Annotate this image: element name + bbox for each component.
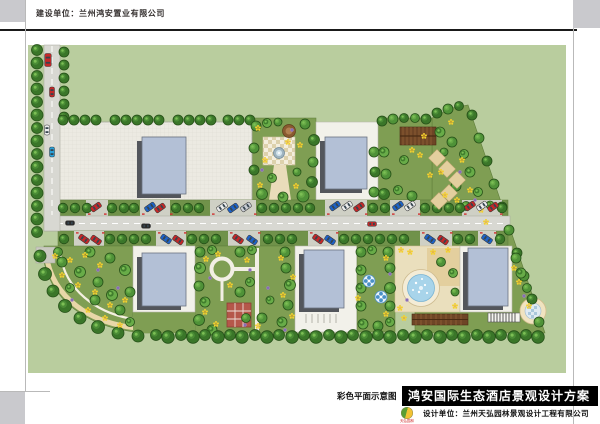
flower-icon bbox=[283, 296, 285, 298]
tree-icon bbox=[358, 303, 361, 306]
flower-icon bbox=[280, 255, 282, 257]
flower-icon bbox=[217, 251, 219, 253]
curb-marker bbox=[142, 213, 145, 214]
tree-icon bbox=[379, 118, 382, 121]
car-icon bbox=[368, 222, 377, 227]
tree-icon bbox=[175, 117, 178, 120]
tree-icon bbox=[396, 188, 398, 190]
tree-icon bbox=[289, 334, 292, 337]
flower-icon bbox=[52, 254, 54, 256]
flower-icon bbox=[419, 152, 421, 154]
flower-icon bbox=[262, 158, 264, 160]
flower-icon bbox=[263, 161, 265, 163]
flower-icon bbox=[94, 291, 96, 293]
flower-icon bbox=[292, 276, 294, 278]
flower-icon bbox=[206, 260, 208, 262]
flower-icon bbox=[385, 255, 387, 257]
tree-icon bbox=[61, 302, 64, 305]
flower-icon bbox=[264, 157, 266, 159]
tree-icon bbox=[202, 299, 205, 302]
building-b-block bbox=[316, 122, 378, 200]
tree-icon bbox=[390, 116, 393, 119]
flower-icon bbox=[530, 304, 532, 306]
tree-icon bbox=[358, 285, 361, 288]
flower-icon bbox=[428, 176, 430, 178]
flower-icon bbox=[487, 220, 489, 222]
flower-icon bbox=[299, 144, 301, 146]
flower-icon bbox=[287, 141, 289, 143]
tree-icon bbox=[310, 159, 313, 162]
flower-icon bbox=[56, 254, 58, 256]
flower-icon bbox=[401, 316, 403, 318]
tree-icon bbox=[87, 249, 90, 252]
tree-icon bbox=[387, 285, 390, 288]
tree-icon bbox=[37, 253, 40, 256]
bottom-left-line bbox=[0, 391, 50, 392]
tree-icon bbox=[145, 117, 148, 120]
building-c-block bbox=[133, 246, 195, 312]
flower-icon bbox=[448, 251, 450, 253]
flower-icon bbox=[409, 249, 411, 251]
flower-icon bbox=[518, 281, 520, 283]
tree-icon bbox=[518, 270, 521, 273]
flower-icon bbox=[259, 182, 261, 184]
parasol-icon bbox=[379, 298, 383, 302]
flower-icon bbox=[423, 135, 425, 137]
flower-icon bbox=[287, 139, 289, 141]
tree-icon bbox=[375, 332, 378, 335]
flower-icon bbox=[421, 134, 423, 136]
tree-icon bbox=[82, 117, 85, 120]
curb-marker bbox=[336, 232, 339, 233]
tree-icon bbox=[215, 334, 218, 337]
tree-icon bbox=[34, 229, 37, 232]
flower-icon bbox=[459, 171, 460, 172]
flower-icon bbox=[419, 154, 421, 156]
flower-icon bbox=[294, 187, 296, 189]
tree-icon bbox=[61, 49, 64, 52]
tree-icon bbox=[153, 332, 156, 335]
design-unit-logo-icon: 天弘园林 bbox=[401, 407, 413, 419]
flower-icon bbox=[512, 269, 514, 271]
tree-icon bbox=[437, 334, 440, 337]
tree-icon bbox=[237, 289, 240, 292]
flower-icon bbox=[257, 323, 259, 325]
flower-icon bbox=[89, 308, 91, 310]
flower-icon bbox=[70, 261, 72, 263]
tree-icon bbox=[251, 167, 254, 170]
flower-icon bbox=[403, 317, 405, 319]
tree-icon bbox=[156, 117, 159, 120]
flower-icon bbox=[231, 283, 233, 285]
flower-icon bbox=[386, 315, 388, 317]
tree-icon bbox=[276, 332, 279, 335]
flower-icon bbox=[290, 317, 292, 319]
tree-icon bbox=[486, 334, 489, 337]
tree-icon bbox=[128, 320, 130, 322]
tree-icon bbox=[34, 151, 37, 154]
tree-icon bbox=[514, 250, 517, 253]
flower-icon bbox=[289, 314, 291, 316]
curb-marker bbox=[365, 213, 368, 214]
flower-icon bbox=[102, 316, 104, 318]
parasol-icon bbox=[364, 279, 368, 283]
flower-icon bbox=[481, 211, 483, 213]
flower-icon bbox=[258, 129, 260, 131]
tree-icon bbox=[271, 205, 273, 207]
flower-icon bbox=[204, 309, 206, 311]
flower-icon bbox=[410, 253, 412, 255]
tree-icon bbox=[474, 332, 477, 335]
tree-icon bbox=[491, 181, 494, 184]
tree-icon bbox=[311, 137, 314, 140]
flower-icon bbox=[227, 283, 229, 285]
curb-marker bbox=[450, 232, 453, 233]
flower-icon bbox=[108, 306, 110, 308]
parasol-icon bbox=[368, 280, 370, 282]
flower-icon bbox=[97, 269, 98, 270]
flower-icon bbox=[461, 159, 463, 161]
tree-icon bbox=[282, 249, 285, 252]
drawing-sheet: 建设单位：兰州鸿安置业有限公司 彩色平面示意图 鸿安国际生态酒店景观设计方案 天… bbox=[0, 0, 600, 424]
tree-icon bbox=[250, 248, 252, 250]
flower-icon bbox=[123, 301, 125, 303]
tree-icon bbox=[434, 110, 437, 113]
flower-icon bbox=[383, 256, 385, 258]
tree-icon bbox=[197, 265, 200, 268]
flower-icon bbox=[255, 324, 257, 326]
tree-icon bbox=[301, 332, 304, 335]
tree-icon bbox=[77, 315, 80, 318]
tree-icon bbox=[467, 169, 470, 172]
flower-icon bbox=[411, 147, 413, 149]
curb-marker bbox=[327, 213, 330, 214]
fountain-jet bbox=[278, 152, 280, 154]
tree-icon bbox=[213, 236, 215, 238]
tree-icon bbox=[381, 191, 384, 194]
flower-icon bbox=[213, 322, 215, 324]
drawing-type-label: 彩色平面示意图 bbox=[337, 390, 397, 402]
parasol-icon bbox=[380, 296, 382, 298]
flower-icon bbox=[100, 266, 102, 268]
flower-icon bbox=[299, 142, 301, 144]
flower-icon bbox=[403, 315, 405, 317]
flower-icon bbox=[256, 129, 258, 131]
tree-icon bbox=[365, 236, 367, 238]
flower-icon bbox=[83, 256, 85, 258]
tree-icon bbox=[412, 334, 415, 337]
flower-icon bbox=[96, 290, 98, 292]
project-title: 鸿安国际生态酒店景观设计方案 bbox=[408, 389, 590, 403]
flower-icon bbox=[77, 284, 79, 286]
flower-icon bbox=[442, 170, 444, 172]
tree-icon bbox=[34, 112, 37, 115]
curb-marker bbox=[464, 213, 467, 214]
tree-icon bbox=[248, 280, 250, 282]
flower-icon bbox=[384, 315, 386, 317]
tree-icon bbox=[173, 205, 175, 207]
tree-icon bbox=[270, 176, 272, 178]
flower-icon bbox=[399, 307, 401, 309]
tree-icon bbox=[457, 104, 459, 106]
tree-icon bbox=[185, 205, 187, 207]
flower-icon bbox=[294, 275, 296, 277]
curb-marker bbox=[170, 213, 173, 214]
tree-icon bbox=[268, 298, 270, 300]
flower-icon bbox=[293, 314, 295, 316]
flower-icon bbox=[257, 127, 259, 129]
flower-icon bbox=[119, 324, 121, 326]
flower-icon bbox=[405, 316, 407, 318]
tree-icon bbox=[377, 236, 379, 238]
tree-icon bbox=[307, 205, 309, 207]
curb-marker bbox=[76, 232, 79, 233]
tree-icon bbox=[385, 249, 388, 252]
flower-icon bbox=[203, 313, 205, 315]
tree-icon bbox=[34, 190, 37, 193]
flower-icon bbox=[119, 322, 121, 324]
tree-icon bbox=[259, 205, 261, 207]
tree-icon bbox=[461, 334, 464, 337]
curb-marker bbox=[212, 213, 215, 214]
flower-icon bbox=[289, 140, 291, 142]
parasol-icon bbox=[367, 276, 371, 280]
flower-icon bbox=[455, 201, 457, 203]
tree-icon bbox=[265, 121, 267, 123]
flower-icon bbox=[229, 282, 231, 284]
tree-icon bbox=[41, 270, 44, 273]
flower-icon bbox=[284, 293, 286, 295]
flower-icon bbox=[519, 283, 521, 285]
tree-icon bbox=[59, 259, 62, 262]
flower-icon bbox=[77, 282, 79, 284]
tree-icon bbox=[61, 236, 63, 238]
flower-icon bbox=[286, 143, 288, 145]
flower-icon bbox=[387, 312, 389, 314]
flower-icon bbox=[453, 307, 455, 309]
flower-icon bbox=[54, 253, 56, 255]
flower-icon bbox=[206, 310, 208, 312]
tree-icon bbox=[236, 117, 239, 120]
flower-icon bbox=[356, 299, 358, 301]
tree-icon bbox=[34, 164, 37, 167]
flower-icon bbox=[513, 267, 515, 269]
site-plan bbox=[0, 0, 600, 424]
flower-icon bbox=[293, 184, 295, 186]
building-d-block bbox=[295, 246, 357, 332]
tree-icon bbox=[358, 267, 361, 270]
tree-icon bbox=[371, 189, 374, 192]
tree-icon bbox=[400, 332, 403, 335]
tree-icon bbox=[536, 319, 539, 322]
tree-icon bbox=[50, 288, 53, 291]
flower-icon bbox=[424, 137, 426, 139]
tree-icon bbox=[381, 149, 384, 152]
flower-icon bbox=[292, 274, 294, 276]
header-rule bbox=[0, 29, 577, 31]
flower-icon bbox=[59, 273, 61, 275]
flower-icon bbox=[384, 259, 386, 261]
tree-icon bbox=[197, 249, 200, 252]
flower-icon bbox=[409, 148, 411, 150]
flower-icon bbox=[454, 303, 456, 305]
flower-icon bbox=[117, 287, 118, 288]
tree-icon bbox=[285, 302, 288, 305]
flower-icon bbox=[215, 321, 217, 323]
tree-icon bbox=[309, 179, 312, 182]
flower-icon bbox=[76, 286, 78, 288]
curb-marker bbox=[184, 232, 187, 233]
flower-icon bbox=[216, 325, 218, 327]
flower-icon bbox=[291, 315, 293, 317]
flower-icon bbox=[291, 278, 293, 280]
tree-icon bbox=[283, 265, 286, 268]
flower-icon bbox=[433, 253, 435, 255]
flower-icon bbox=[259, 126, 261, 128]
flower-icon bbox=[456, 304, 458, 306]
flower-icon bbox=[71, 258, 73, 260]
flower-icon bbox=[79, 283, 81, 285]
flower-icon bbox=[434, 250, 436, 252]
flower-icon bbox=[85, 256, 87, 258]
flower-icon bbox=[385, 257, 387, 259]
flower-icon bbox=[485, 221, 487, 223]
flower-icon bbox=[402, 248, 404, 250]
flower-icon bbox=[84, 254, 86, 256]
flower-icon bbox=[69, 257, 71, 259]
flower-icon bbox=[85, 308, 87, 310]
tree-icon bbox=[264, 334, 267, 337]
left-margin-line bbox=[25, 0, 26, 391]
flower-icon bbox=[421, 153, 423, 155]
flower-icon bbox=[125, 301, 127, 303]
tree-icon bbox=[523, 332, 526, 335]
flower-icon bbox=[516, 280, 518, 282]
tree-icon bbox=[107, 255, 110, 258]
flower-icon bbox=[431, 173, 433, 175]
tree-icon bbox=[253, 123, 256, 126]
tree-icon bbox=[239, 334, 242, 337]
tree-icon bbox=[387, 334, 390, 337]
tree-icon bbox=[277, 236, 279, 238]
flower-icon bbox=[520, 280, 522, 282]
flower-icon bbox=[300, 146, 302, 148]
tree-icon bbox=[95, 279, 98, 282]
flower-icon bbox=[442, 193, 444, 195]
flower-icon bbox=[118, 326, 120, 328]
flower-icon bbox=[486, 223, 488, 225]
tree-icon bbox=[360, 321, 363, 324]
flower-icon bbox=[432, 251, 434, 253]
tree-icon bbox=[135, 333, 138, 336]
flower-icon bbox=[474, 199, 475, 200]
flower-icon bbox=[447, 247, 449, 249]
tree-icon bbox=[84, 205, 86, 207]
tree-icon bbox=[94, 323, 97, 326]
flower-icon bbox=[355, 296, 357, 298]
flower-icon bbox=[69, 259, 71, 261]
tree-icon bbox=[370, 205, 372, 207]
tree-icon bbox=[134, 117, 137, 120]
tree-icon bbox=[196, 317, 199, 320]
parasol-icon bbox=[367, 282, 371, 286]
flower-icon bbox=[411, 250, 413, 252]
flower-icon bbox=[440, 171, 442, 173]
flower-icon bbox=[205, 313, 207, 315]
tree-icon bbox=[107, 236, 109, 238]
flower-icon bbox=[209, 277, 210, 278]
flower-icon bbox=[400, 247, 402, 249]
tree-icon bbox=[358, 249, 361, 252]
flower-icon bbox=[68, 261, 70, 263]
tree-icon bbox=[402, 116, 404, 118]
tree-icon bbox=[382, 205, 384, 207]
flower-icon bbox=[423, 133, 425, 135]
flower-icon bbox=[258, 327, 260, 329]
tree-icon bbox=[61, 62, 64, 65]
flower-icon bbox=[406, 299, 407, 300]
flower-icon bbox=[256, 327, 258, 329]
flower-icon bbox=[53, 257, 55, 259]
flower-icon bbox=[278, 256, 280, 258]
tree-icon bbox=[302, 121, 305, 124]
tree-icon bbox=[353, 236, 355, 238]
tree-icon bbox=[372, 169, 375, 172]
flower-icon bbox=[407, 250, 409, 252]
flower-icon bbox=[95, 293, 97, 295]
tree-icon bbox=[387, 265, 390, 268]
flower-icon bbox=[514, 269, 516, 271]
flower-icon bbox=[217, 253, 219, 255]
flower-icon bbox=[358, 299, 360, 301]
building-e-block bbox=[460, 246, 512, 312]
flower-icon bbox=[452, 120, 454, 122]
flower-icon bbox=[513, 265, 515, 267]
building-d bbox=[304, 250, 344, 308]
flower-icon bbox=[61, 274, 63, 276]
tree-icon bbox=[202, 332, 205, 335]
tree-icon bbox=[462, 152, 464, 154]
parasol-icon bbox=[379, 292, 383, 296]
flower-icon bbox=[217, 322, 219, 324]
tree-icon bbox=[34, 99, 37, 102]
building-c bbox=[142, 253, 186, 306]
tree-icon bbox=[60, 205, 62, 207]
tree-icon bbox=[295, 170, 297, 172]
flower-icon bbox=[418, 156, 420, 158]
entry-plaza bbox=[58, 122, 252, 200]
flower-icon bbox=[202, 310, 204, 312]
flower-icon bbox=[446, 193, 448, 195]
tree-icon bbox=[529, 296, 532, 299]
right-margin-line bbox=[573, 28, 574, 424]
flower-icon bbox=[417, 153, 419, 155]
south-pergola bbox=[412, 314, 468, 325]
tree-icon bbox=[227, 332, 230, 335]
flower-icon bbox=[485, 219, 487, 221]
flower-icon bbox=[97, 263, 99, 265]
tree-icon bbox=[513, 255, 516, 258]
tree-icon bbox=[525, 286, 527, 288]
flower-icon bbox=[445, 196, 447, 198]
building-b bbox=[325, 137, 367, 189]
flower-icon bbox=[109, 302, 111, 304]
north-pergola bbox=[400, 127, 436, 145]
design-unit-logo-caption: 天弘园林 bbox=[399, 419, 415, 423]
flower-icon bbox=[443, 196, 445, 198]
tree-icon bbox=[389, 236, 391, 238]
tree-icon bbox=[476, 135, 479, 138]
